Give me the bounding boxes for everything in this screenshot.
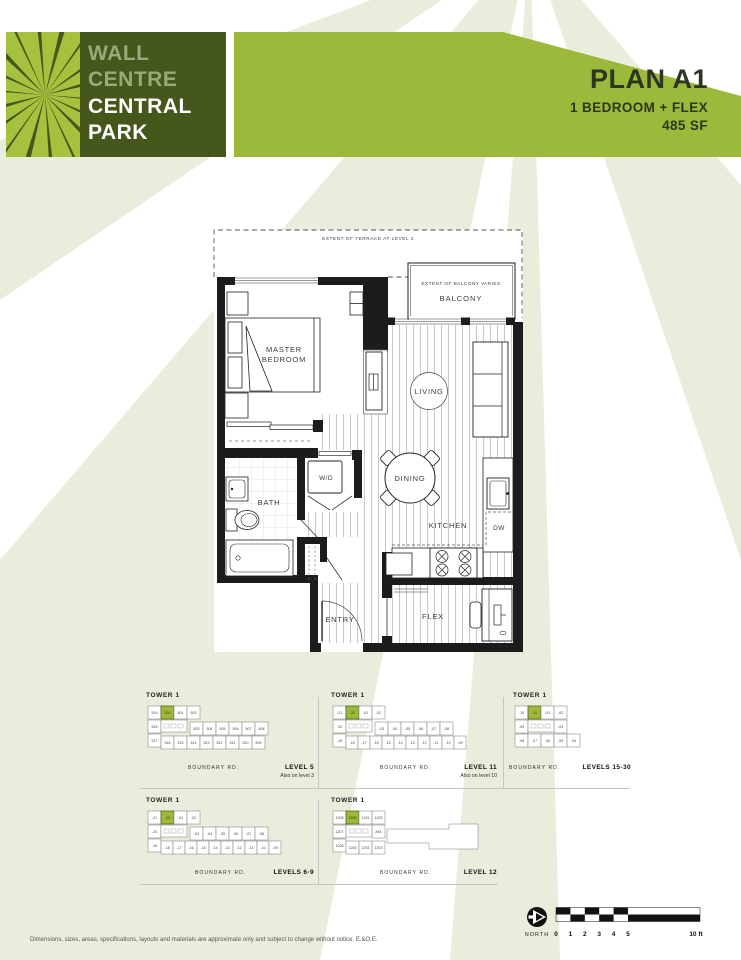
keyplan-diagram: -21-22-01-02-20-03-04-05-06-07-08-19-18-… — [146, 809, 286, 865]
level-label: LEVEL 12 — [464, 869, 497, 876]
unit-number: 506 — [233, 727, 239, 731]
pillow — [228, 357, 242, 388]
scale-tick: 0 — [554, 931, 558, 938]
unit-number: 510 — [243, 741, 249, 745]
unit-number: 1204 — [362, 846, 370, 850]
unit-number: -02 — [558, 711, 563, 715]
scale-tick: 2 — [583, 931, 587, 938]
unit-number: 509 — [256, 741, 262, 745]
unit-number: -05 — [220, 832, 225, 836]
media-console — [364, 350, 388, 414]
unit-number: 520 — [165, 711, 171, 715]
nightstand — [227, 292, 248, 315]
unit-number: -07 — [431, 727, 436, 731]
tower-label: TOWER 1 — [146, 692, 180, 699]
unit-number: 1202 — [375, 816, 383, 820]
unit-number: 502 — [191, 711, 197, 715]
logo-line-park: PARK — [88, 121, 148, 144]
divider-line — [140, 788, 630, 789]
level-note: Also on level 10 — [460, 773, 497, 779]
unit-number: -17 — [361, 741, 366, 745]
unit-number: -14 — [397, 741, 402, 745]
keyplan-level-12: TOWER 1 120812091201120212071206AM.12051… — [325, 797, 503, 893]
level-label: LEVELS 6-9 — [274, 869, 314, 876]
unit-number: -16 — [188, 846, 193, 850]
unit-number: -15 — [385, 741, 390, 745]
scale-tick: 5 — [626, 931, 630, 938]
level-label: LEVELS 15-30 — [582, 764, 631, 771]
plan-subtitle: 1 BEDROOM + FLEX — [570, 100, 708, 115]
unit-number: 513 — [204, 741, 210, 745]
unit-number: 517 — [152, 739, 158, 743]
tower-label: TOWER 1 — [146, 797, 180, 804]
keyplan-diagram: -10-11-01-02-09-03-08-07-06-05-04 — [513, 704, 583, 760]
nightstand — [225, 393, 248, 418]
plan-area: 485 SF — [662, 118, 708, 133]
monitor — [494, 605, 501, 625]
desk-chair — [470, 602, 481, 628]
sofa — [473, 342, 508, 437]
unit-number: -22 — [350, 711, 355, 715]
flyer-page: WALL CENTRE CENTRAL PARK PLAN A1 1 BEDRO… — [0, 0, 741, 960]
divider-line — [503, 697, 504, 788]
unit-number: -10 — [445, 741, 450, 745]
boundary-road-label: BOUNDARY RD. — [509, 765, 560, 771]
logo-line-central: CENTRAL — [88, 95, 192, 118]
unit-number: -13 — [409, 741, 414, 745]
pillow — [228, 322, 242, 353]
keyplan-level-5: TOWER 1 51952050150251850350450550650750… — [140, 692, 320, 788]
unit-number: 1207 — [336, 830, 344, 834]
unit-number: 1201 — [362, 816, 370, 820]
unit-number: 507 — [246, 727, 252, 731]
unit-number: -11 — [532, 711, 537, 715]
keyplan-levels-6-9: TOWER 1 -21-22-01-02-20-03-04-05-06-07-0… — [140, 797, 320, 893]
starburst-bg — [6, 32, 80, 157]
unit-number: -02 — [376, 711, 381, 715]
north-label: NORTH — [525, 932, 549, 938]
logo-line-wall: WALL — [88, 42, 149, 65]
unit-number: AM. — [375, 830, 381, 834]
unit-number: 1206 — [336, 844, 344, 848]
unit-number: -06 — [233, 832, 238, 836]
unit-number: -04 — [392, 727, 397, 731]
unit-number: -04 — [571, 739, 576, 743]
closet-door — [227, 422, 271, 427]
faucet — [506, 492, 509, 495]
unit-number: 515 — [178, 741, 184, 745]
unit-number: -03 — [558, 725, 563, 729]
unit-number: -03 — [194, 832, 199, 836]
unit-number: 505 — [220, 727, 226, 731]
unit-number: -04 — [207, 832, 212, 836]
unit-number: -12 — [236, 846, 241, 850]
entry-label: ENTRY — [325, 615, 354, 624]
scale-tick: 3 — [597, 931, 601, 938]
level-note: Also on level 3 — [280, 773, 314, 779]
amenity-outline — [387, 824, 478, 849]
master-bedroom-label2: BEDROOM — [262, 355, 306, 364]
unit-number: -02 — [191, 816, 196, 820]
unit-number: -13 — [224, 846, 229, 850]
unit-number: -18 — [349, 741, 354, 745]
unit-number: 512 — [217, 741, 223, 745]
unit-number: -19 — [152, 844, 157, 848]
unit-number: -12 — [421, 741, 426, 745]
level-label: LEVEL 11 — [460, 764, 497, 771]
wd-label: W/D — [319, 475, 333, 482]
unit-number: -09 — [272, 846, 277, 850]
tower-label: TOWER 1 — [513, 692, 547, 699]
tub-drain — [236, 556, 240, 560]
unit-number: -06 — [418, 727, 423, 731]
boundary-road-label: BOUNDARY RD. — [188, 765, 239, 771]
scale-tick: 1 — [569, 931, 573, 938]
unit-number: 1203 — [375, 846, 383, 850]
unit-number: -17 — [176, 846, 181, 850]
unit-number: 508 — [259, 727, 265, 731]
unit-number: 514 — [191, 741, 197, 745]
unit-number: -07 — [246, 832, 251, 836]
unit-number: 516 — [165, 741, 171, 745]
unit-number: -01 — [545, 711, 550, 715]
keyplan-diagram: 5195205015025185035045055065075085175165… — [146, 704, 276, 760]
unit-number: -06 — [545, 739, 550, 743]
scale-tick: 4 — [612, 931, 616, 938]
unit-number: 519 — [152, 711, 158, 715]
unit-number: -08 — [519, 739, 524, 743]
plan-title: PLAN A1 — [590, 64, 708, 94]
unit-number: -11 — [249, 846, 254, 850]
unit-number: -19 — [337, 739, 342, 743]
floorplan: EXTENT OF TERRACE AT LEVEL 3 EXTENT OF B… — [190, 215, 540, 675]
kitchen-label: KITCHEN — [429, 521, 468, 530]
balcony-extent-label: EXTENT OF BALCONY VARIES — [421, 281, 500, 287]
unit-number: -18 — [164, 846, 169, 850]
unit-number: 1209 — [349, 816, 357, 820]
unit-number: -10 — [260, 846, 265, 850]
keyplan-level-11: TOWER 1 -21-22-01-02-20-03-04-05-06-07-0… — [325, 692, 503, 788]
unit-number: -07 — [532, 739, 537, 743]
keyplan-levels-15-30: TOWER 1 -10-11-01-02-09-03-08-07-06-05-0… — [507, 692, 633, 788]
unit-number: -10 — [519, 711, 524, 715]
keyplan-diagram: -21-22-01-02-20-03-04-05-06-07-08-19-18-… — [331, 704, 471, 760]
unit-number: -21 — [152, 816, 157, 820]
cabinet — [386, 553, 412, 575]
unit-number: 1205 — [349, 846, 357, 850]
scale-bar — [556, 908, 700, 922]
unit-number: -21 — [337, 711, 342, 715]
terrace-extent-label: EXTENT OF TERRACE AT LEVEL 3 — [322, 236, 414, 242]
balcony: EXTENT OF BALCONY VARIES BALCONY — [408, 263, 515, 320]
unit-number: -08 — [259, 832, 264, 836]
bath-label: BATH — [258, 498, 281, 507]
unit-number: -20 — [337, 725, 342, 729]
unit-number: -01 — [178, 816, 183, 820]
plan-banner — [234, 32, 741, 157]
unit-number: -11 — [434, 741, 439, 745]
boundary-road-label: BOUNDARY RD. — [195, 870, 246, 876]
unit-number: -16 — [373, 741, 378, 745]
unit-number: 518 — [152, 725, 158, 729]
unit-number: -09 — [457, 741, 462, 745]
level-label: LEVEL 5 — [280, 764, 314, 771]
unit-number: -22 — [165, 816, 170, 820]
master-bedroom-label: MASTER — [266, 345, 302, 354]
closet-door — [270, 425, 313, 430]
unit-number: -03 — [379, 727, 384, 731]
north-icon — [527, 907, 547, 927]
bedroom-door-leaf — [319, 452, 351, 456]
unit-number: -09 — [519, 725, 524, 729]
unit-number: -05 — [405, 727, 410, 731]
scale-end-label: 10 ft — [689, 931, 703, 938]
unit-number: -14 — [212, 846, 217, 850]
boundary-road-label: BOUNDARY RD. — [380, 765, 431, 771]
unit-number: -01 — [363, 711, 368, 715]
unit-number: -15 — [200, 846, 205, 850]
unit-number: -08 — [444, 727, 449, 731]
unit-number: -05 — [558, 739, 563, 743]
header: WALL CENTRE CENTRAL PARK PLAN A1 1 BEDRO… — [0, 0, 741, 190]
flex-label: FLEX — [422, 612, 444, 621]
balcony-label: BALCONY — [440, 294, 483, 303]
living-label: LIVING — [414, 387, 443, 396]
dw-label: DW — [493, 525, 505, 532]
header-gap — [226, 32, 234, 157]
unit-number: 1208 — [336, 816, 344, 820]
tower-label: TOWER 1 — [331, 692, 365, 699]
footer: Dimensions, sizes, areas, specifications… — [0, 890, 741, 960]
unit-number: 503 — [194, 727, 200, 731]
keyplan-diagram: 120812091201120212071206AM.120512041203 — [331, 809, 481, 865]
tower-label: TOWER 1 — [331, 797, 365, 804]
unit-number: 501 — [178, 711, 184, 715]
unit-number: -20 — [152, 830, 157, 834]
unit-number: 511 — [230, 741, 236, 745]
divider-line — [318, 800, 319, 884]
dining-label: DINING — [394, 474, 425, 483]
boundary-road-label: BOUNDARY RD. — [380, 870, 431, 876]
disclaimer-text: Dimensions, sizes, areas, specifications… — [30, 937, 378, 943]
divider-line — [318, 697, 319, 788]
unit-number: 504 — [207, 727, 213, 731]
logo-line-centre: CENTRE — [88, 68, 177, 91]
divider-line — [140, 884, 498, 885]
